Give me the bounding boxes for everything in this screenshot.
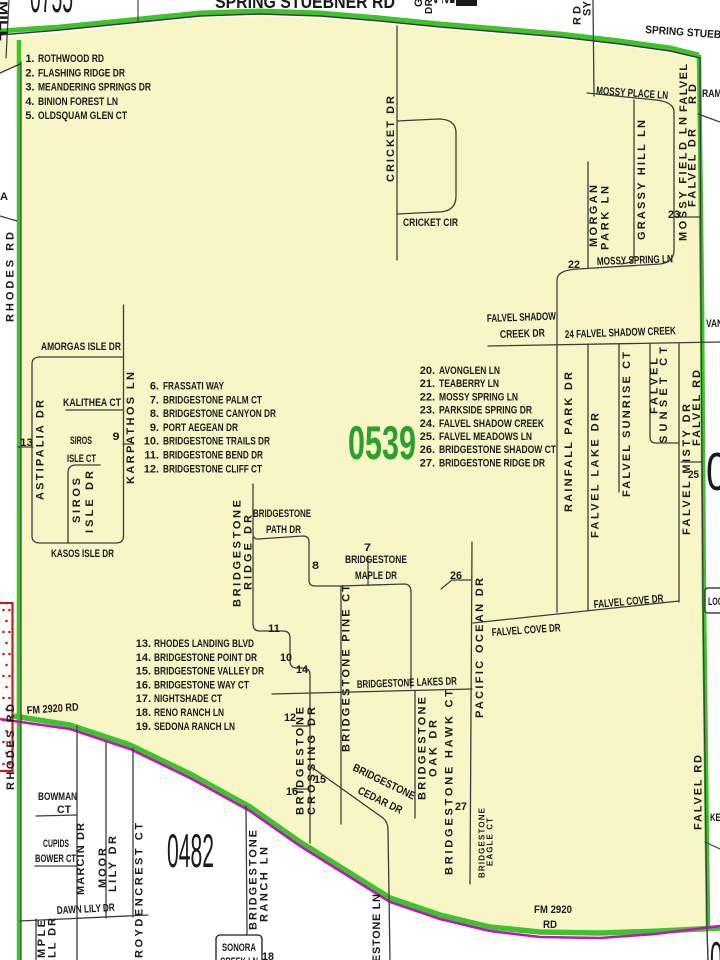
svg-text:BOWMAN: BOWMAN — [38, 791, 77, 803]
svg-text:SPRING STUEBNER RD: SPRING STUEBNER RD — [215, 0, 395, 12]
svg-text:23: 23 — [668, 209, 680, 221]
svg-text:BRIDGESTONE RIDGE DR: BRIDGESTONE RIDGE DR — [439, 457, 545, 469]
svg-text:SIROS: SIROS — [71, 478, 83, 523]
svg-text:2.: 2. — [25, 67, 34, 79]
svg-text:RENO RANCH LN: RENO RANCH LN — [154, 707, 224, 719]
svg-text:1.: 1. — [25, 53, 34, 65]
svg-text:DR: DR — [424, 0, 435, 14]
svg-text:MEANDERING SPRINGS DR: MEANDERING SPRINGS DR — [38, 82, 151, 94]
svg-text:RHODES LANDING BLVD: RHODES LANDING BLVD — [154, 638, 254, 650]
svg-text:BRIDGESTONE CLIFF CT: BRIDGESTONE CLIFF CT — [163, 463, 262, 475]
svg-text:23.: 23. — [420, 405, 435, 417]
svg-text:KARPATHOS LN: KARPATHOS LN — [125, 372, 137, 484]
svg-text:8: 8 — [312, 560, 319, 572]
svg-text:0402: 0402 — [433, 0, 455, 12]
svg-text:SONORA: SONORA — [222, 942, 256, 954]
svg-text:FALVEL RD: FALVEL RD — [693, 755, 705, 830]
svg-text:4.: 4. — [25, 96, 34, 108]
svg-text:26.: 26. — [420, 444, 435, 456]
svg-text:10: 10 — [280, 652, 292, 664]
svg-text:06: 06 — [710, 932, 720, 960]
svg-text:22: 22 — [568, 259, 580, 271]
svg-text:FALVEL SUNRISE CT: FALVEL SUNRISE CT — [621, 352, 633, 497]
svg-text:16.: 16. — [136, 679, 151, 691]
svg-text:0539: 0539 — [348, 416, 416, 469]
svg-text:ESTONE LN: ESTONE LN — [371, 894, 383, 960]
svg-text:0755: 0755 — [30, 0, 73, 22]
svg-text:EAGLE CT: EAGLE CT — [486, 818, 495, 866]
svg-text:PATH DR: PATH DR — [266, 524, 301, 536]
svg-text:CUPIDS: CUPIDS — [43, 838, 69, 850]
svg-text:27.: 27. — [420, 457, 435, 469]
svg-text:FALVEL SHADOW: FALVEL SHADOW — [487, 311, 557, 325]
svg-text:SEDONA RANCH LN: SEDONA RANCH LN — [154, 721, 235, 733]
svg-text:BRIDGESTONE BEND DR: BRIDGESTONE BEND DR — [163, 450, 263, 462]
svg-text:FM 2920: FM 2920 — [534, 904, 572, 916]
svg-text:FALVEL DR: FALVEL DR — [687, 129, 699, 207]
svg-text:26: 26 — [450, 570, 462, 582]
svg-text:BRIDGESTONE TRAILS DR: BRIDGESTONE TRAILS DR — [163, 436, 270, 448]
svg-text:17.: 17. — [136, 693, 151, 705]
svg-text:05: 05 — [706, 442, 720, 502]
svg-text:3.: 3. — [25, 82, 34, 94]
svg-text:MILL: MILL — [0, 1, 9, 41]
svg-text:15.: 15. — [136, 666, 151, 678]
svg-text:14: 14 — [296, 664, 309, 676]
svg-text:21.: 21. — [420, 378, 435, 390]
svg-text:BRIDGESTONE: BRIDGESTONE — [345, 554, 407, 566]
svg-text:OLDSQUAM GLEN CT: OLDSQUAM GLEN CT — [38, 110, 127, 122]
svg-text:7: 7 — [364, 542, 371, 554]
svg-text:BINION FOREST LN: BINION FOREST LN — [38, 96, 118, 108]
svg-text:BRIDGESTONE PALM CT: BRIDGESTONE PALM CT — [163, 394, 262, 406]
svg-text:25.: 25. — [420, 431, 435, 443]
svg-text:RAMB: RAMB — [702, 88, 720, 100]
svg-text:A: A — [0, 191, 8, 203]
svg-text:FRASSATI WAY: FRASSATI WAY — [163, 381, 224, 393]
svg-text:NIGHTSHADE CT: NIGHTSHADE CT — [154, 693, 222, 705]
svg-text:BRIDGESTONE: BRIDGESTONE — [295, 707, 307, 815]
svg-text:11: 11 — [268, 623, 280, 635]
svg-text:7.: 7. — [150, 394, 159, 406]
svg-text:CRICKET CIR: CRICKET CIR — [403, 217, 458, 229]
svg-text:RHODES RD: RHODES RD — [5, 704, 17, 790]
svg-text:BRIDGESTONE: BRIDGESTONE — [253, 508, 311, 520]
svg-text:SIROS: SIROS — [70, 435, 92, 447]
svg-text:FALVEL LAKE DR: FALVEL LAKE DR — [590, 413, 602, 538]
svg-text:SUNSET CT: SUNSET CT — [658, 347, 670, 443]
svg-text:LL DR: LL DR — [47, 918, 59, 958]
svg-text:14.: 14. — [136, 652, 151, 664]
svg-text:BRIDGESTONE VALLEY DR: BRIDGESTONE VALLEY DR — [154, 666, 264, 678]
svg-text:BRIDGESTONE CANYON DR: BRIDGESTONE CANYON DR — [163, 408, 276, 420]
svg-text:PACIFIC OCEAN DR: PACIFIC OCEAN DR — [474, 578, 486, 718]
svg-text:RANCH LN: RANCH LN — [259, 847, 271, 922]
svg-text:LILY DR: LILY DR — [107, 836, 119, 892]
svg-text:KALITHEA CT: KALITHEA CT — [63, 397, 121, 409]
svg-text:13.: 13. — [136, 638, 151, 650]
svg-text:BOWER CT: BOWER CT — [35, 853, 76, 865]
svg-text:ASTIPALIA DR: ASTIPALIA DR — [35, 400, 47, 500]
svg-text:RD: RD — [543, 919, 557, 931]
svg-text:25: 25 — [688, 469, 699, 481]
svg-text:9.: 9. — [150, 422, 159, 434]
svg-text:BRIDGESTONE SHADOW CT: BRIDGESTONE SHADOW CT — [439, 444, 556, 456]
svg-text:BRIDGESTONE WAY CT: BRIDGESTONE WAY CT — [154, 679, 249, 691]
svg-text:19.: 19. — [136, 721, 151, 733]
svg-text:CT: CT — [57, 804, 71, 816]
svg-text:CREEK DR: CREEK DR — [500, 327, 545, 341]
svg-text:11.: 11. — [144, 450, 159, 462]
svg-text:FALVEL RD: FALVEL RD — [691, 370, 703, 446]
svg-text:0482: 0482 — [167, 824, 214, 877]
svg-text:27: 27 — [455, 801, 467, 813]
svg-text:9: 9 — [113, 431, 120, 443]
svg-text:KEN: KEN — [710, 812, 720, 824]
svg-text:10.: 10. — [144, 436, 159, 448]
svg-text:13: 13 — [20, 437, 33, 449]
svg-text:PORT AEGEAN DR: PORT AEGEAN DR — [163, 422, 238, 434]
svg-text:12.: 12. — [144, 463, 159, 475]
svg-text:AMORGAS ISLE DR: AMORGAS ISLE DR — [41, 341, 121, 353]
svg-text:ROTHWOOD RD: ROTHWOOD RD — [38, 53, 104, 65]
svg-text:22.: 22. — [420, 391, 435, 403]
svg-text:AVONGLEN LN: AVONGLEN LN — [439, 365, 500, 377]
svg-text:LOOP: LOOP — [708, 596, 720, 608]
svg-text:CROSSING DR: CROSSING DR — [306, 707, 318, 815]
svg-text:24.: 24. — [420, 418, 435, 430]
svg-text:KASOS ISLE DR: KASOS ISLE DR — [51, 548, 114, 560]
svg-text:MARCIN DR: MARCIN DR — [75, 823, 87, 895]
svg-text:20.: 20. — [420, 365, 435, 377]
svg-text:FALVEL SHADOW CREEK: FALVEL SHADOW CREEK — [439, 418, 544, 430]
svg-text:ISLE CT: ISLE CT — [67, 453, 96, 465]
svg-text:18.: 18. — [136, 707, 151, 719]
svg-text:5.: 5. — [25, 110, 34, 122]
svg-text:FLASHING RIDGE DR: FLASHING RIDGE DR — [38, 67, 125, 79]
svg-text:FALVEL MEADOWS LN: FALVEL MEADOWS LN — [439, 431, 532, 443]
svg-text:BRIDGESTONE POINT DR: BRIDGESTONE POINT DR — [154, 652, 257, 664]
svg-text:RHODES RD: RHODES RD — [5, 232, 17, 322]
svg-text:OAK DR: OAK DR — [428, 720, 440, 777]
svg-text:6.: 6. — [150, 381, 159, 393]
svg-text:TEABERRY LN: TEABERRY LN — [439, 378, 499, 390]
svg-text:PARKSIDE SPRING DR: PARKSIDE SPRING DR — [439, 405, 532, 417]
svg-text:BRIDGESTONE HAWK CT: BRIDGESTONE HAWK CT — [444, 690, 456, 875]
svg-text:8.: 8. — [150, 408, 159, 420]
svg-text:MOSSY SPRING LN: MOSSY SPRING LN — [439, 391, 518, 403]
svg-text:MAPLE DR: MAPLE DR — [355, 570, 397, 582]
svg-text:18: 18 — [262, 951, 274, 960]
svg-text:CREEK LN: CREEK LN — [220, 956, 258, 960]
svg-text:VAN: VAN — [706, 318, 720, 330]
